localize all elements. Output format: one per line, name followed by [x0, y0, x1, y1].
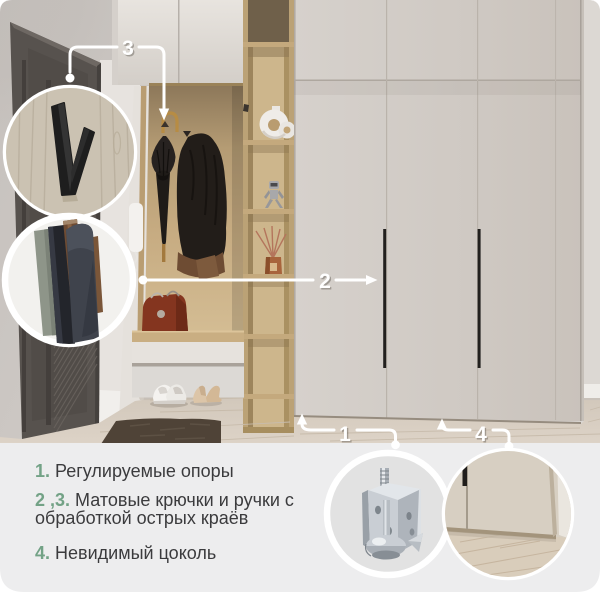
svg-text:4: 4	[475, 423, 487, 446]
svg-text:2: 2	[319, 270, 331, 293]
svg-text:1: 1	[339, 423, 351, 446]
svg-text:3: 3	[122, 37, 134, 60]
